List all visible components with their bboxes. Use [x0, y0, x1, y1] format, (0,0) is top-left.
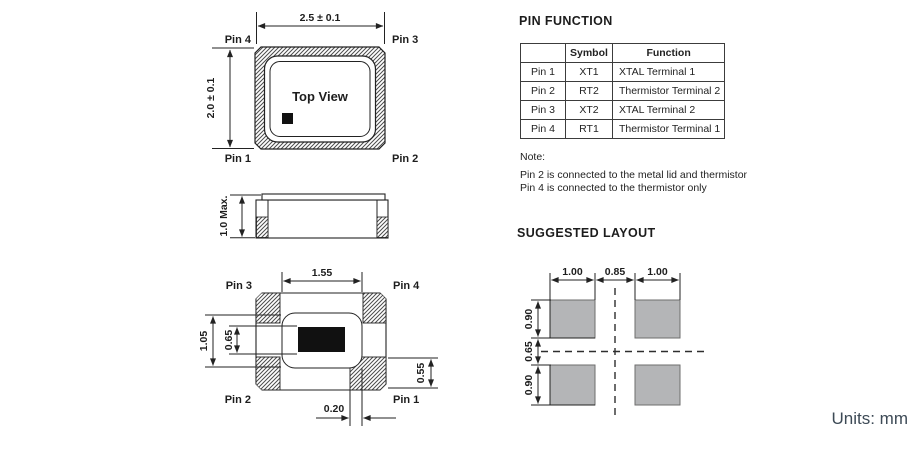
table-cell-function: Thermistor Terminal 1 [612, 120, 724, 139]
dim-bottom-right [388, 358, 438, 388]
side-view-left-pad [257, 217, 269, 238]
side-view-drawing: 1.0 Max. [190, 185, 430, 247]
top-view-width-dim: 2.5 ± 0.1 [300, 12, 341, 24]
layout-pad-bottom-left [550, 365, 595, 405]
pin-function-title: PIN FUNCTION [519, 14, 613, 28]
note-title: Note: [520, 151, 810, 165]
table-header-function: Function [612, 44, 724, 63]
table-header-symbol: Symbol [566, 44, 613, 63]
bottom-view-crystal-opening [298, 327, 345, 352]
top-view-pin1-label: Pin 1 [225, 153, 251, 165]
layout-pad-top-right [635, 300, 680, 338]
bottom-view-pin2-label: Pin 2 [225, 394, 251, 406]
datasheet-drawing-page: Top View 2.5 ± 0.1 2.0 ± 0.1 Pin 4 Pin 3… [0, 0, 911, 469]
bottom-view-pin4-label: Pin 4 [393, 280, 420, 292]
top-view-height-dim: 2.0 ± 0.1 [205, 77, 217, 118]
table-cell-symbol: RT2 [566, 82, 613, 101]
side-view-body [256, 200, 388, 238]
table-cell-function: XTAL Terminal 2 [612, 101, 724, 120]
note-block: Note: Pin 2 is connected to the metal li… [520, 151, 810, 196]
layout-pad-width-right-dim: 1.00 [647, 266, 668, 278]
bottom-pad-pin3 [256, 293, 280, 323]
table-cell-pin: Pin 3 [521, 101, 566, 120]
layout-row-gap-dim: 0.65 [523, 341, 535, 362]
table-cell-pin: Pin 2 [521, 82, 566, 101]
bottom-view-pad-height-dim: 0.55 [415, 363, 427, 384]
side-view-right-pad [377, 217, 388, 238]
table-row: Pin 1 XT1 XTAL Terminal 1 [521, 63, 725, 82]
note-line: Pin 4 is connected to the thermistor onl… [520, 182, 810, 196]
layout-pad-width-left-dim: 1.00 [562, 266, 583, 278]
layout-pad-height-bottom-dim: 0.90 [523, 375, 535, 396]
bottom-view-pin3-label: Pin 3 [226, 280, 252, 292]
table-cell-pin: Pin 1 [521, 63, 566, 82]
bottom-pad-pin2 [256, 357, 280, 390]
table-cell-symbol: XT1 [566, 63, 613, 82]
pin-function-table: Symbol Function Pin 1 XT1 XTAL Terminal … [520, 43, 725, 139]
bottom-view-width-dim: 1.55 [312, 267, 333, 279]
layout-pad-bottom-right [635, 365, 680, 405]
top-view-pin3-label: Pin 3 [392, 34, 418, 46]
bottom-view-pin1-label: Pin 1 [393, 394, 419, 406]
pin1-index-mark [282, 113, 293, 124]
bottom-view-pad-offset-dim: 0.20 [324, 403, 345, 415]
table-cell-symbol: RT1 [566, 120, 613, 139]
units-label: Units: mm [760, 409, 908, 429]
layout-pad-height-top-dim: 0.90 [523, 309, 535, 330]
table-header-blank [521, 44, 566, 63]
table-header-row: Symbol Function [521, 44, 725, 63]
bottom-view-opening-height-dim: 0.65 [223, 330, 235, 351]
note-line: Pin 2 is connected to the metal lid and … [520, 169, 810, 183]
top-view-pin2-label: Pin 2 [392, 153, 418, 165]
table-cell-pin: Pin 4 [521, 120, 566, 139]
top-view-drawing: Top View 2.5 ± 0.1 2.0 ± 0.1 Pin 4 Pin 3… [190, 0, 430, 178]
table-row: Pin 4 RT1 Thermistor Terminal 1 [521, 120, 725, 139]
table-cell-symbol: XT2 [566, 101, 613, 120]
top-view-pin4-label: Pin 4 [225, 34, 252, 46]
table-cell-function: Thermistor Terminal 2 [612, 82, 724, 101]
top-view-label: Top View [292, 89, 349, 104]
suggested-layout-drawing: 1.00 0.85 1.00 0.90 0.65 0.90 [505, 255, 735, 430]
side-view-lid [262, 194, 385, 200]
dim-left-height [212, 48, 254, 149]
side-view-height-dim: 1.0 Max. [218, 195, 230, 236]
bottom-view-body-height-dim: 1.05 [198, 331, 210, 352]
suggested-layout-title: SUGGESTED LAYOUT [517, 226, 656, 240]
layout-pad-top-left [550, 300, 595, 338]
bottom-view-drawing: 1.55 1.05 0.65 0.55 0.20 Pin 3 [190, 260, 460, 469]
bottom-pad-pin4 [363, 293, 386, 323]
layout-gap-dim: 0.85 [605, 266, 626, 278]
table-row: Pin 2 RT2 Thermistor Terminal 2 [521, 82, 725, 101]
table-row: Pin 3 XT2 XTAL Terminal 2 [521, 101, 725, 120]
table-cell-function: XTAL Terminal 1 [612, 63, 724, 82]
